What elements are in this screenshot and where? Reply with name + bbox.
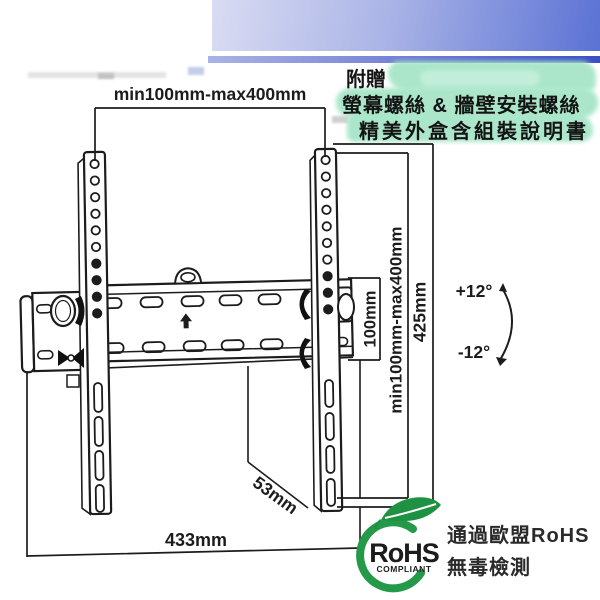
top-width-bracket [95, 108, 325, 161]
dim-53mm-label: 53mm [249, 472, 302, 518]
dim-433mm-label: 433mm [165, 530, 227, 550]
dim-100mm-label: 100mm [361, 291, 379, 348]
tilt-down-label: -12° [458, 342, 490, 362]
product-diagram-page: 附贈 螢幕螺絲 & 牆壁安裝螺絲 精美外盒含組裝說明書 [0, 0, 600, 600]
left-vesa-rail [76, 152, 111, 514]
dim-vesa-range-label: min100mm-max400mm [386, 226, 405, 413]
cert-line-2: 無毒檢測 [447, 551, 531, 580]
projection-lines [248, 360, 360, 553]
wall-mount-technical-drawing: min100mm-max400mm 100mm min100mm-max400m… [0, 0, 600, 600]
right-vesa-rail [308, 149, 342, 511]
tilt-up-label: +12° [456, 281, 493, 301]
rohs-compliant-text: COMPLIANT [376, 564, 431, 574]
left-tension-knob [51, 296, 85, 326]
cert-line-1: 通過歐盟RoHS [447, 519, 589, 548]
dim-425mm-label: 425mm [410, 282, 430, 342]
tilt-arc [496, 283, 512, 366]
dim-vesa-width-label: min100mm-max400mm [114, 84, 307, 104]
